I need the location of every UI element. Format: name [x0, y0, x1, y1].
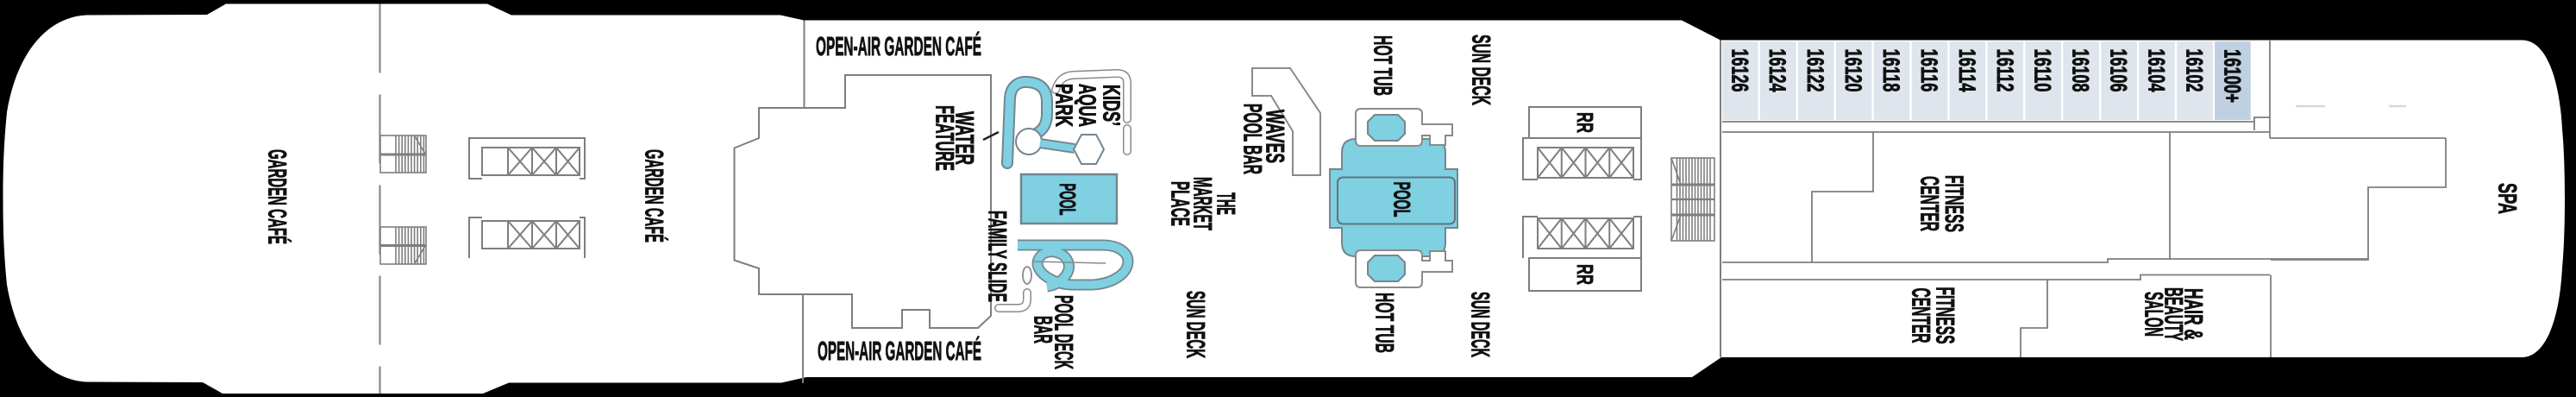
svg-text:16102: 16102	[2182, 49, 2208, 92]
svg-text:HOT TUB: HOT TUB	[1370, 293, 1399, 353]
svg-text:CENTER: CENTER	[1915, 176, 1944, 231]
svg-text:16100+: 16100+	[2219, 49, 2245, 103]
svg-text:OPEN-AIR GARDEN CAFÉ: OPEN-AIR GARDEN CAFÉ	[816, 31, 981, 61]
svg-text:SUN DECK: SUN DECK	[1181, 291, 1210, 358]
svg-text:BAR: BAR	[1029, 316, 1057, 343]
svg-text:16108: 16108	[2068, 49, 2094, 92]
svg-text:16116: 16116	[1916, 49, 1942, 92]
svg-text:OPEN-AIR GARDEN CAFÉ: OPEN-AIR GARDEN CAFÉ	[818, 336, 981, 366]
svg-text:POOL: POOL	[1055, 184, 1081, 216]
svg-text:16106: 16106	[2106, 49, 2132, 92]
svg-text:POOL: POOL	[1389, 182, 1415, 217]
svg-text:16114: 16114	[1954, 49, 1980, 92]
svg-text:HOT TUB: HOT TUB	[1369, 35, 1397, 96]
svg-text:SUN DECK: SUN DECK	[1466, 292, 1495, 357]
svg-text:PARK: PARK	[1051, 84, 1078, 127]
svg-text:FEATURE: FEATURE	[931, 105, 959, 171]
svg-text:FAMILY SLIDE: FAMILY SLIDE	[983, 211, 1012, 302]
svg-text:GARDEN CAFÉ: GARDEN CAFÉ	[640, 149, 669, 243]
svg-text:16126: 16126	[1727, 49, 1752, 92]
svg-text:SUN DECK: SUN DECK	[1467, 35, 1495, 105]
svg-text:16110: 16110	[2030, 49, 2056, 92]
svg-text:SALON: SALON	[2140, 292, 2168, 337]
svg-text:16118: 16118	[1878, 49, 1904, 92]
svg-text:16112: 16112	[1992, 49, 2018, 92]
svg-text:RR: RR	[1572, 264, 1598, 285]
svg-text:PLACE: PLACE	[1166, 181, 1194, 226]
svg-text:CENTER: CENTER	[1907, 288, 1935, 343]
svg-text:16124: 16124	[1764, 49, 1790, 92]
svg-text:KIDS’: KIDS’	[1099, 85, 1125, 126]
svg-text:SPA: SPA	[2493, 183, 2522, 214]
svg-text:POOL BAR: POOL BAR	[1238, 104, 1267, 174]
svg-text:GARDEN CAFÉ: GARDEN CAFÉ	[263, 149, 292, 244]
svg-text:RR: RR	[1572, 112, 1598, 133]
svg-text:16122: 16122	[1802, 49, 1828, 92]
svg-text:16104: 16104	[2144, 49, 2170, 92]
svg-text:16120: 16120	[1840, 49, 1866, 92]
